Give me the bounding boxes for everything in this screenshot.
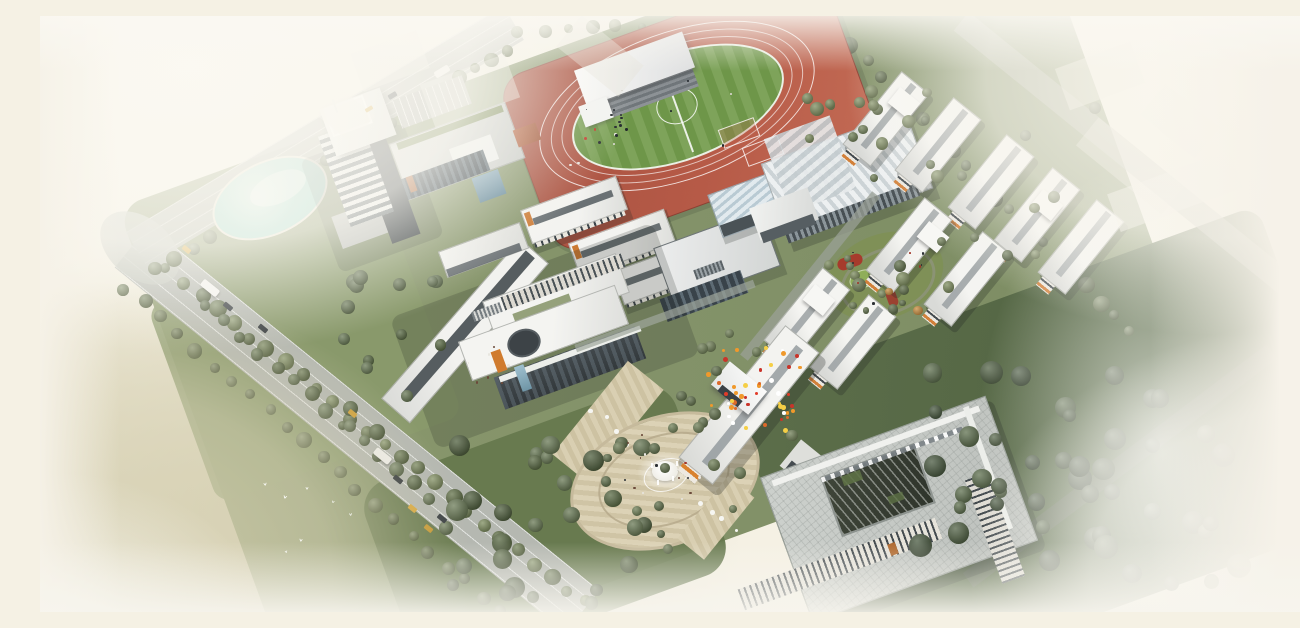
flying-bird-icon: ˅ xyxy=(305,489,310,498)
flying-bird-icon: ˅ xyxy=(348,514,353,523)
white-fade-bottom-edge xyxy=(40,16,1300,612)
campus-aerial-rendering: ˅˅˅˅˅˅˅ xyxy=(40,16,1300,612)
